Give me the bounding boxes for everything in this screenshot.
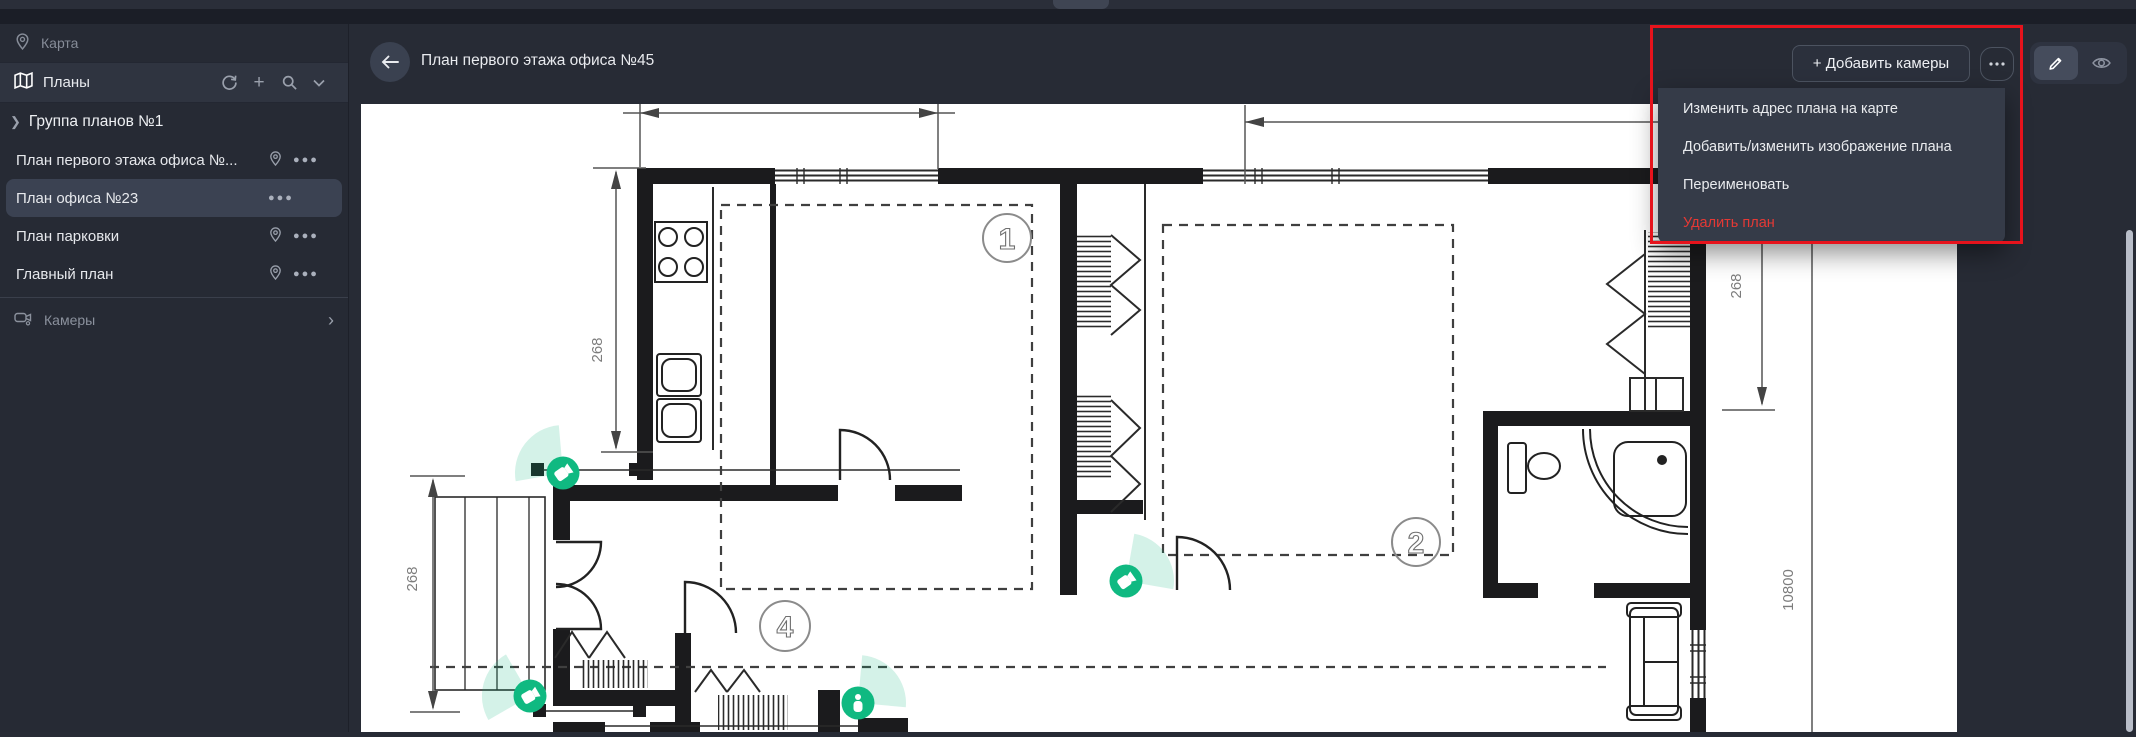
more-icon[interactable]: ●●●	[268, 192, 294, 204]
closets	[555, 232, 1690, 730]
window-top-strip	[0, 0, 2136, 9]
pin-icon[interactable]	[268, 151, 283, 170]
more-icon[interactable]: ●●●	[293, 268, 319, 280]
plan-context-menu: Изменить адрес плана на карте Добавить/и…	[1658, 88, 2005, 243]
chevron-down-icon[interactable]	[304, 78, 334, 88]
map-icon	[14, 72, 33, 93]
camera-marker-3[interactable]	[482, 654, 547, 720]
sidebar-item-plan-floor1[interactable]: План первого этажа офиса №... ●●●	[6, 141, 342, 179]
more-icon[interactable]: ●●●	[293, 154, 319, 166]
map-pin-icon	[14, 33, 31, 53]
dim-label-268-left-bottom: 268	[404, 566, 421, 591]
vertical-scrollbar[interactable]	[2126, 230, 2133, 732]
camera-marker-1[interactable]	[515, 425, 580, 489]
arrow-left-icon	[380, 54, 400, 70]
menu-item-delete-plan[interactable]: Удалить план	[1658, 204, 2005, 242]
dim-label-10800: 10800	[1780, 569, 1797, 611]
chevron-right-icon[interactable]: ❯	[10, 114, 21, 130]
sidebar-item-plan-parking[interactable]: План парковки ●●●	[6, 217, 342, 255]
sidebar-item-plan-main[interactable]: Главный план ●●●	[6, 255, 342, 293]
menu-item-rename[interactable]: Переименовать	[1658, 166, 2005, 204]
dim-label-268-left-top: 268	[589, 337, 606, 362]
room-number-2: 2	[1408, 527, 1425, 560]
sidebar-item-cameras[interactable]: Камеры ›	[0, 300, 348, 340]
room-number-4: 4	[777, 611, 794, 644]
camera-marker-2[interactable]	[1110, 534, 1175, 598]
search-icon[interactable]	[274, 74, 304, 91]
add-cameras-button[interactable]: + Добавить камеры	[1792, 45, 1970, 82]
mode-toggle	[2030, 42, 2127, 84]
add-plan-icon[interactable]: +	[244, 72, 274, 94]
sidebar-map-label: Карта	[41, 35, 78, 51]
cameras-label: Камеры	[44, 312, 328, 328]
pin-icon[interactable]	[268, 227, 283, 246]
bathroom-fixtures	[1508, 429, 1688, 534]
kitchen-fixtures	[655, 222, 707, 442]
refresh-icon[interactable]	[214, 74, 244, 91]
more-actions-button[interactable]	[1980, 47, 2014, 81]
more-icon[interactable]: ●●●	[293, 230, 319, 242]
eye-icon	[2092, 56, 2111, 70]
camera-marker-4[interactable]	[842, 655, 906, 719]
three-dots-icon	[1989, 62, 2005, 66]
sidebar-plans-header[interactable]: Планы +	[0, 62, 348, 103]
sidebar-item-map[interactable]: Карта	[0, 24, 348, 62]
sidebar: Карта Планы + ❯ Группа планов №1 План пе…	[0, 24, 349, 732]
page-title: План первого этажа офиса №45	[421, 52, 654, 70]
window-second-strip	[0, 9, 2136, 24]
room-number-1: 1	[999, 223, 1016, 256]
menu-item-change-image[interactable]: Добавить/изменить изображение плана	[1658, 128, 2005, 166]
group-label: Группа планов №1	[29, 113, 163, 131]
menu-item-change-address[interactable]: Изменить адрес плана на карте	[1658, 90, 2005, 128]
sidebar-item-plan-office23[interactable]: План офиса №23 ●●●	[6, 179, 342, 217]
back-button[interactable]	[370, 42, 410, 82]
sidebar-divider	[0, 297, 348, 298]
sidebar-plans-label: Планы	[43, 74, 90, 91]
sofa	[1627, 603, 1681, 720]
main-area: План первого этажа офиса №45 + Добавить …	[349, 24, 2136, 732]
top-tab	[1053, 0, 1109, 9]
chevron-right-icon[interactable]: ›	[328, 310, 334, 331]
video-camera-icon	[14, 310, 34, 330]
dim-label-268-right: 268	[1728, 273, 1745, 298]
dashed-zones	[430, 205, 1606, 667]
pencil-icon	[2047, 55, 2064, 72]
doors	[556, 430, 1230, 633]
edit-mode-button[interactable]	[2034, 46, 2078, 80]
pin-icon[interactable]	[268, 265, 283, 284]
view-mode-button[interactable]	[2080, 46, 2124, 80]
sidebar-group-plans[interactable]: ❯ Группа планов №1	[0, 103, 348, 141]
